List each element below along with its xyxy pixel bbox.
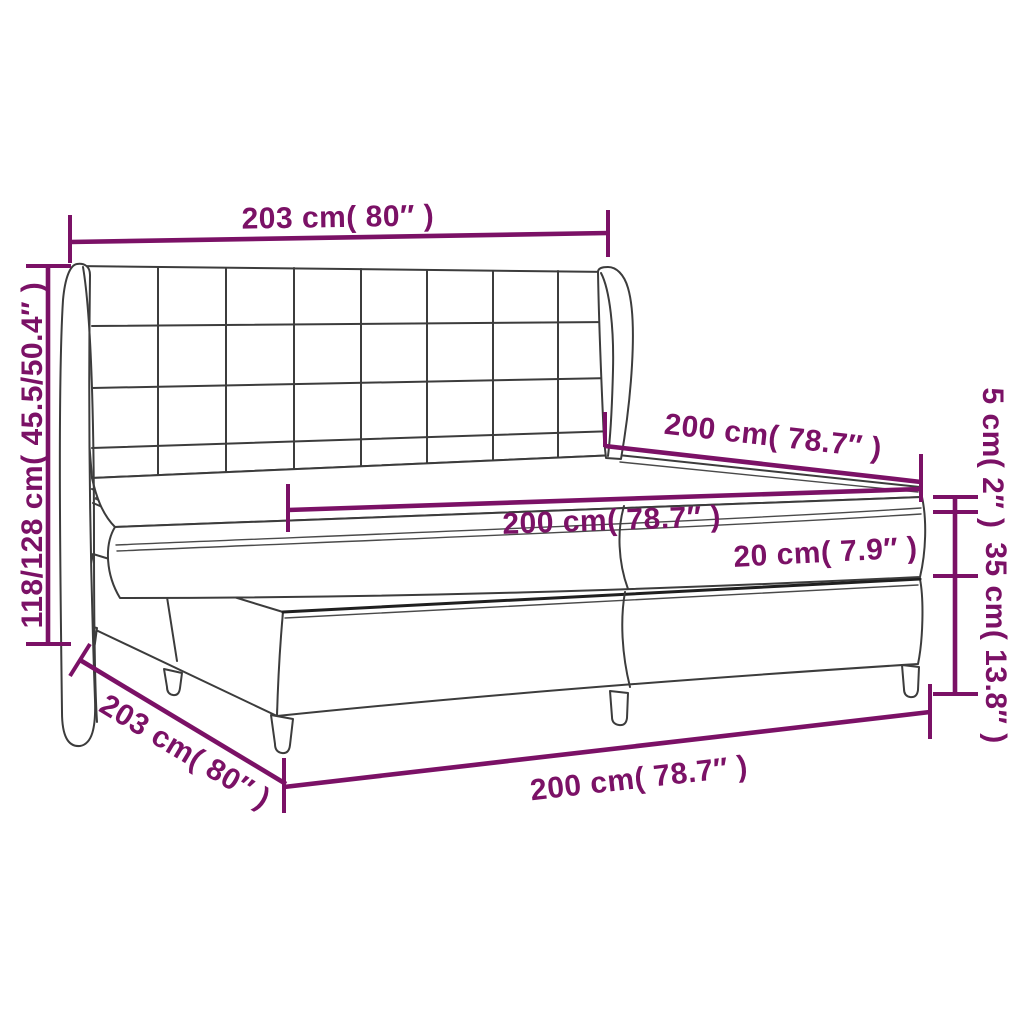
diagram-canvas: 203 cm( 80″ ) 118/128 cm( 45.5/50.4″ ) 2…	[0, 0, 1024, 1024]
dim-headboard-width: 203 cm( 80″ )	[70, 199, 608, 263]
dimension-label: 203 cm( 80″ )	[241, 199, 434, 235]
dimension-line	[70, 233, 608, 242]
dimension-label: 118/128 cm( 45.5/50.4″ )	[16, 282, 49, 629]
bed-leg	[164, 669, 182, 695]
dim-right-heights: 5 cm( 2″ ) 35 cm( 13.8″ )	[933, 387, 1012, 743]
dimension-label: 5 cm( 2″ )	[976, 387, 1009, 528]
dimension-label: 203 cm( 80″ )	[94, 688, 276, 816]
bed-dimension-diagram: 203 cm( 80″ ) 118/128 cm( 45.5/50.4″ ) 2…	[0, 0, 1024, 1024]
bed-leg	[610, 691, 628, 725]
base-front-face	[277, 579, 922, 716]
dimension-label: 200 cm( 78.7″ )	[528, 750, 749, 808]
dimension-label: 35 cm( 13.8″ )	[979, 542, 1012, 743]
headboard	[75, 266, 618, 478]
bed-leg	[271, 715, 293, 753]
bed-leg	[902, 665, 919, 697]
